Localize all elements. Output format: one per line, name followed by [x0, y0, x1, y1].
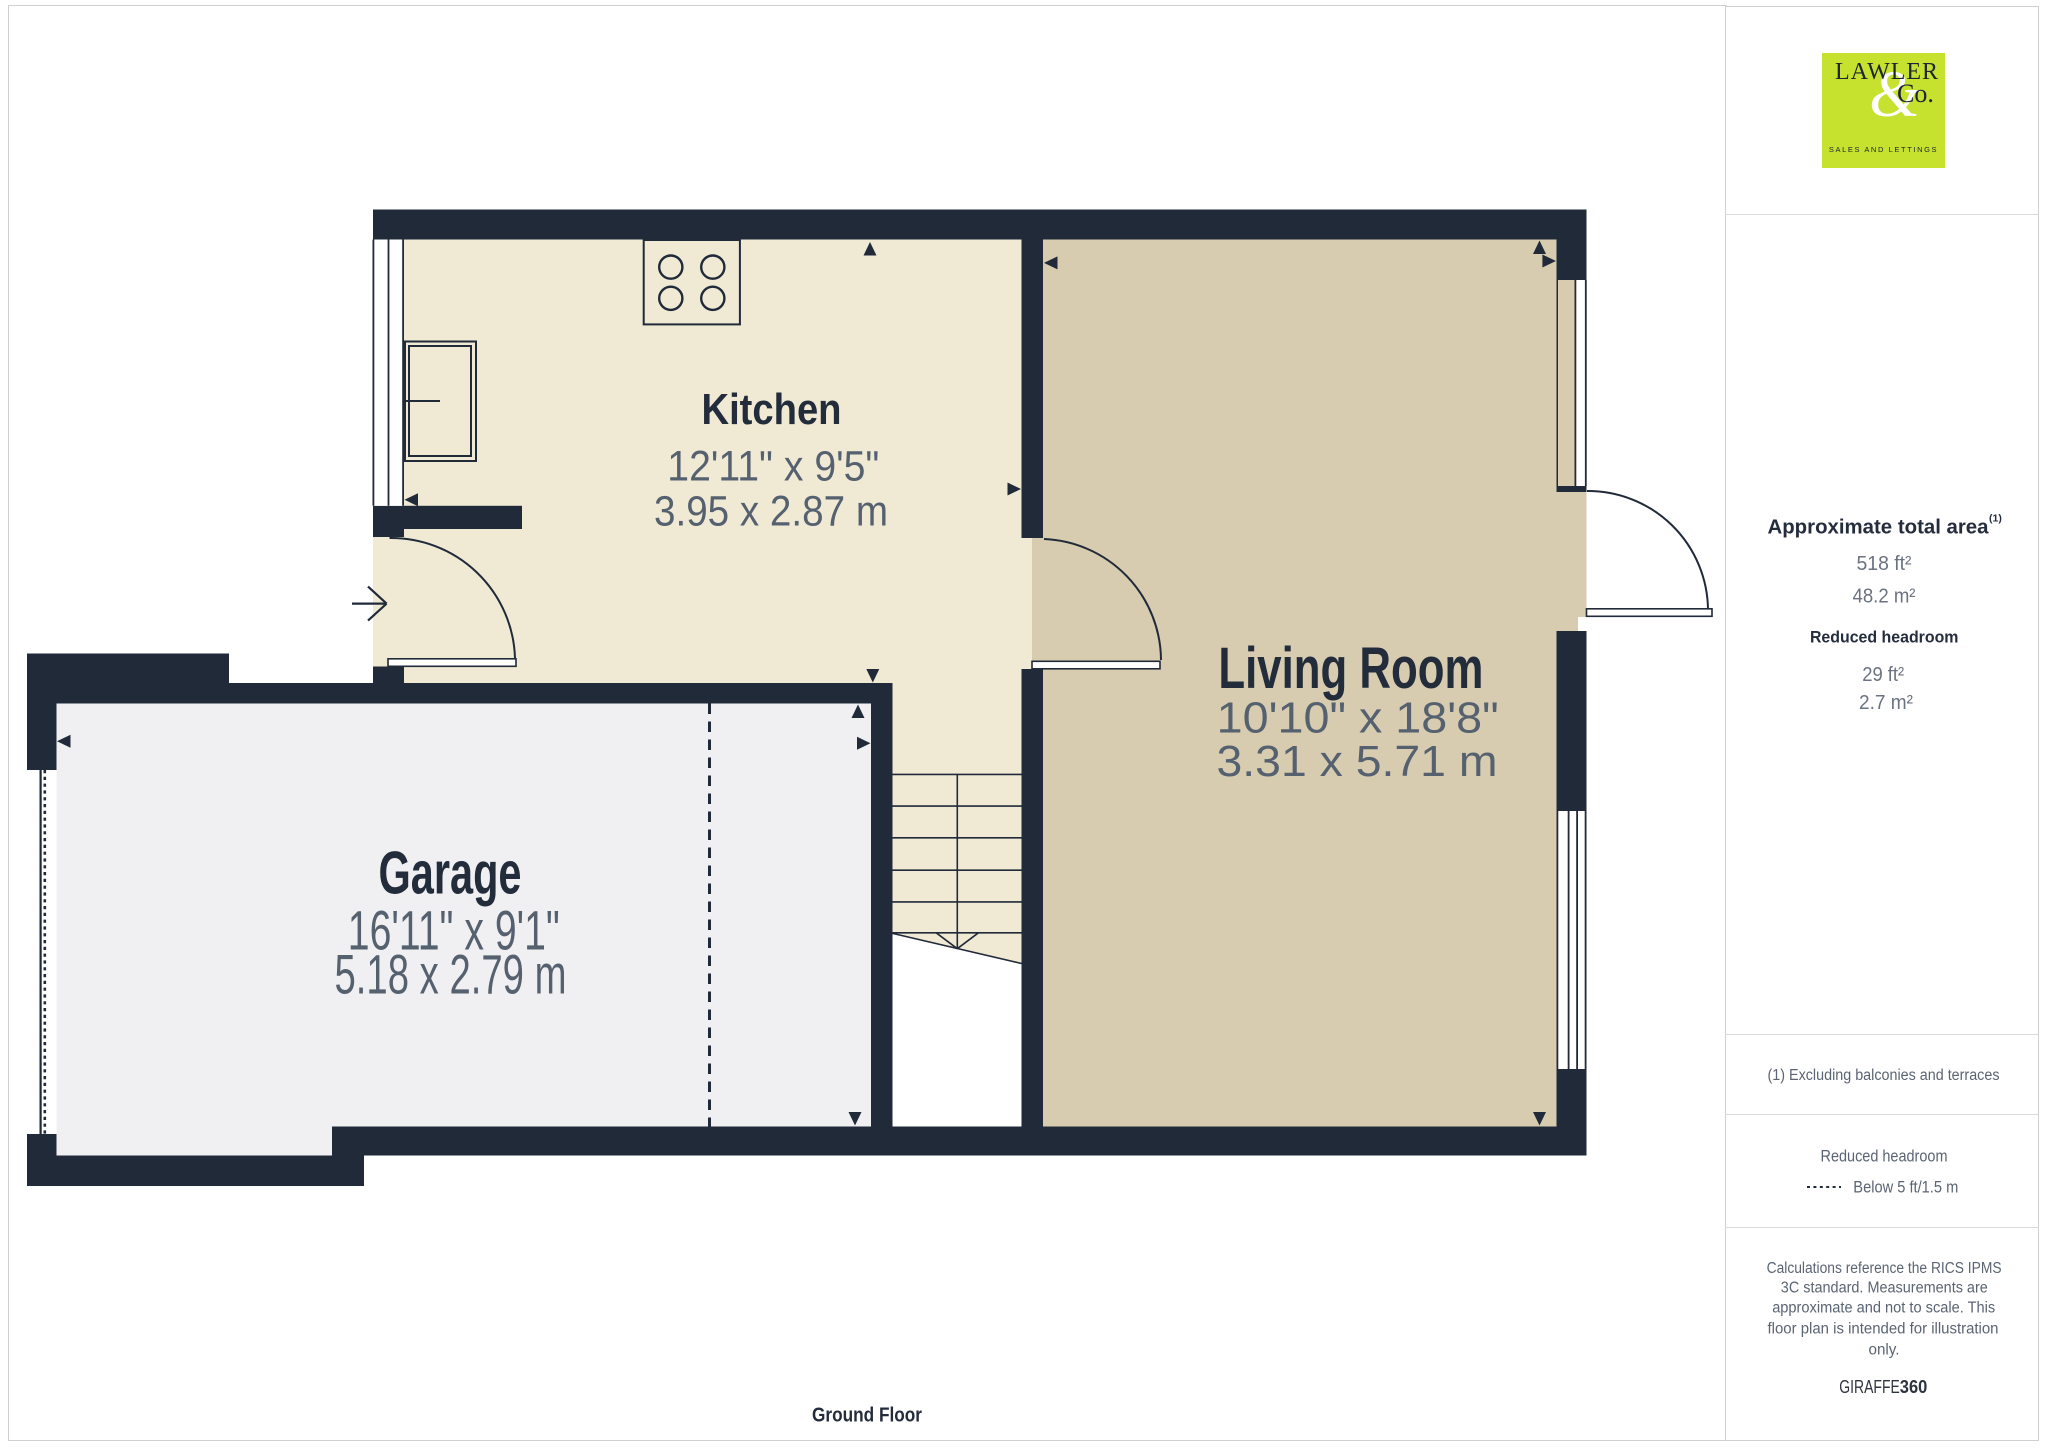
svg-text:Kitchen: Kitchen: [702, 385, 842, 434]
svg-text:Reduced headroom: Reduced headroom: [1821, 1148, 1948, 1166]
svg-text:Calculations reference the RIC: Calculations reference the RICS IPMS: [1767, 1260, 2002, 1277]
svg-text:3.95 x 2.87 m: 3.95 x 2.87 m: [654, 488, 888, 536]
svg-text:approximate and not to scale.: approximate and not to scale. This: [1772, 1300, 1995, 1317]
svg-text:2.7 m²: 2.7 m²: [1859, 691, 1913, 714]
svg-text:12'11" x 9'5": 12'11" x 9'5": [667, 443, 879, 491]
svg-text:floor plan is intended for ill: floor plan is intended for illustration: [1768, 1321, 1999, 1338]
svg-text:29 ft²: 29 ft²: [1862, 663, 1904, 686]
svg-text:48.2 m²: 48.2 m²: [1853, 584, 1916, 607]
svg-text:360: 360: [1900, 1377, 1928, 1397]
svg-text:Reduced headroom: Reduced headroom: [1810, 628, 1959, 647]
svg-text:3.31 x 5.71 m: 3.31 x 5.71 m: [1217, 737, 1498, 786]
svg-text:5.18 x 2.79 m: 5.18 x 2.79 m: [335, 942, 567, 1005]
svg-text:GIRAFFE: GIRAFFE: [1839, 1377, 1900, 1397]
svg-text:(1): (1): [1989, 513, 2002, 525]
svg-text:Ground Floor: Ground Floor: [812, 1404, 922, 1427]
svg-text:Approximate total area: Approximate total area: [1768, 516, 1990, 538]
svg-text:Below 5 ft/1.5 m: Below 5 ft/1.5 m: [1853, 1178, 1958, 1196]
svg-text:518 ft²: 518 ft²: [1857, 552, 1912, 575]
svg-text:3C standard. Measurements are: 3C standard. Measurements are: [1781, 1280, 1988, 1297]
svg-text:Living Room: Living Room: [1218, 636, 1483, 701]
svg-text:Garage: Garage: [379, 839, 522, 906]
svg-text:10'10" x 18'8": 10'10" x 18'8": [1217, 693, 1499, 742]
svg-text:(1) Excluding balconies and te: (1) Excluding balconies and terraces: [1768, 1067, 2000, 1084]
svg-text:only.: only.: [1869, 1342, 1900, 1359]
